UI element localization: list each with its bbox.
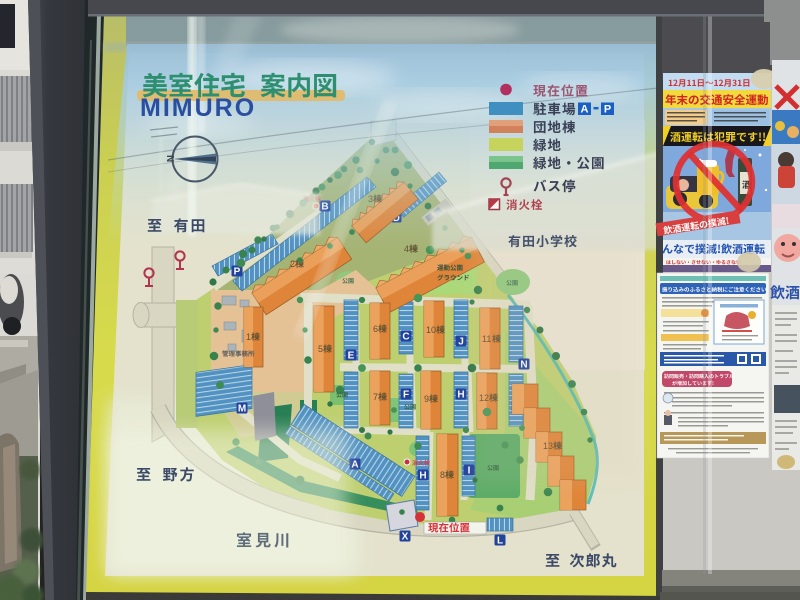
svg-text:N: N <box>164 155 175 162</box>
svg-text:MIMURO: MIMURO <box>140 94 256 122</box>
svg-text:P: P <box>604 104 611 116</box>
svg-text:A: A <box>581 104 589 116</box>
